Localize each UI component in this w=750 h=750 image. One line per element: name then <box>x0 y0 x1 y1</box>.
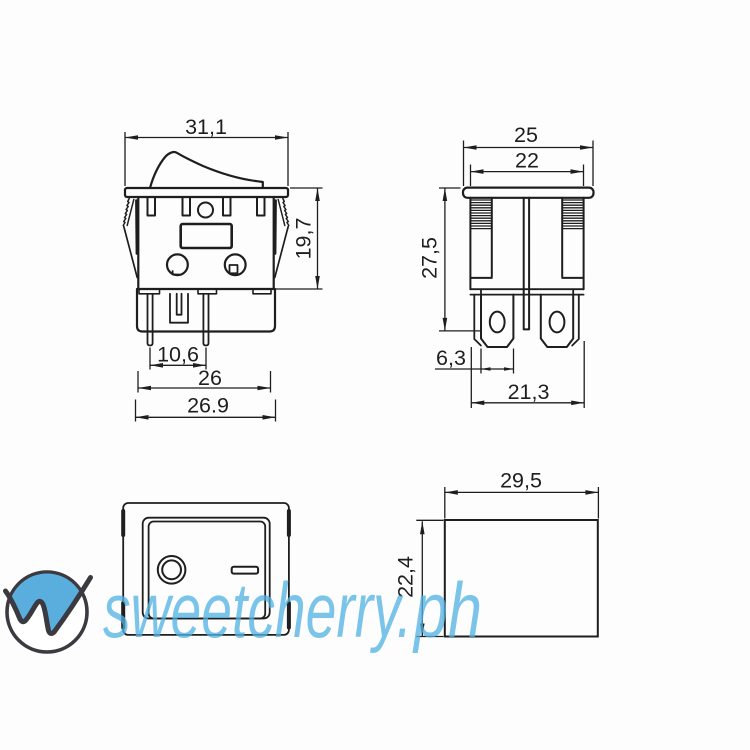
svg-text:19,7: 19,7 <box>292 218 316 260</box>
svg-text:31,1: 31,1 <box>185 115 227 139</box>
svg-text:ph: ph <box>412 566 482 654</box>
svg-text:26: 26 <box>198 366 222 390</box>
svg-text:25: 25 <box>514 123 538 147</box>
svg-text:6,3: 6,3 <box>436 346 466 370</box>
svg-text:10,6: 10,6 <box>157 343 199 367</box>
svg-text:22: 22 <box>515 149 539 173</box>
svg-text:26.9: 26.9 <box>187 394 229 418</box>
svg-text:27,5: 27,5 <box>418 237 442 279</box>
svg-text:29,5: 29,5 <box>500 469 542 493</box>
svg-text:sweetcherry.: sweetcherry. <box>103 566 412 654</box>
svg-text:21,3: 21,3 <box>508 380 550 404</box>
